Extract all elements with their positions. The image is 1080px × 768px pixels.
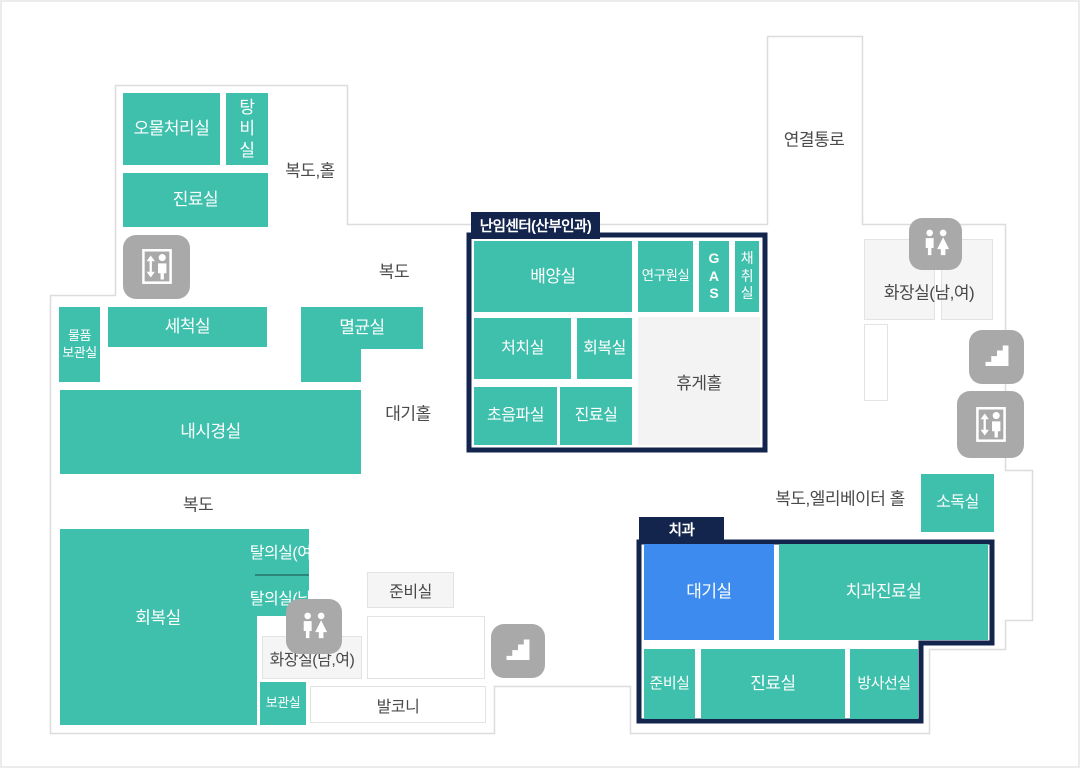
room-pantry-label: 탕 비 실	[239, 97, 254, 161]
dental-tab: 치과	[639, 517, 724, 542]
room-waste-disposal: 오물처리실	[123, 93, 220, 165]
room-dental-clinic-label: 치과진료실	[846, 581, 922, 602]
fertility-center-tab-label: 난임센터(산부인과)	[480, 215, 591, 236]
room-dental-treatment-label: 진료실	[750, 673, 795, 694]
room-dental-treatment: 진료실	[701, 649, 845, 719]
room-collection: 채 취 실	[735, 241, 759, 312]
lounge-hall-label: 휴게홀	[676, 369, 721, 394]
label-elevator-hall: 복도,엘리베이터 홀	[775, 485, 905, 510]
room-culture: 배양실	[474, 241, 632, 312]
room-treatment: 처치실	[474, 318, 571, 379]
room-dental-prep: 준비실	[644, 649, 695, 719]
room-disinfection: 소독실	[921, 474, 994, 532]
room-treatment-label: 처치실	[501, 339, 544, 359]
label-corridor-top: 복도	[379, 258, 409, 283]
stairs-icon-right	[969, 330, 1024, 384]
room-collection-label: 채 취 실	[741, 250, 753, 303]
room-radiology: 방사선실	[850, 649, 918, 719]
prep-room-label: 준비실	[389, 578, 432, 602]
label-waiting-hall: 대기홀	[385, 400, 430, 425]
room-recovery-label: 회복실	[135, 604, 180, 629]
room-dental-clinic: 치과진료실	[779, 544, 988, 640]
prep-room-box: 준비실	[367, 572, 454, 608]
room-researcher: 연구원실	[638, 241, 693, 312]
balcony-box: 발코니	[310, 686, 486, 723]
elevator-icon-right	[957, 391, 1024, 458]
room-sterilization: 멸균실	[301, 307, 423, 349]
room-radiology-label: 방사선실	[857, 675, 910, 694]
room-clinic-fertility-label: 진료실	[575, 406, 618, 426]
room-culture-label: 배양실	[530, 266, 575, 287]
lounge-hall: 휴게홀	[638, 317, 760, 445]
room-dental-waiting: 대기실	[644, 544, 774, 640]
room-changing-women-label: 탈의실(여)	[250, 539, 317, 563]
room-waste-disposal-label: 오물처리실	[134, 118, 210, 139]
room-recovery-fertility: 회복실	[577, 318, 632, 379]
elevator-icon	[123, 235, 190, 299]
room-gas: G A S	[699, 241, 729, 312]
room-pantry: 탕 비 실	[226, 93, 268, 165]
room-washing: 세척실	[108, 307, 267, 347]
restroom-icon-top	[909, 218, 962, 270]
room-sterilization-label: 멸균실	[339, 317, 384, 338]
changing-room-divider	[255, 574, 309, 576]
label-hall-top: 복도,홀	[285, 157, 335, 182]
room-gas-label: G A S	[709, 250, 720, 303]
room-ultrasound-label: 초음파실	[487, 406, 544, 426]
room-goods-storage: 물품 보관실	[59, 307, 100, 382]
restroom-icon-bottom	[286, 599, 342, 654]
room-endoscopy: 내시경실	[60, 390, 361, 474]
room-clinic-top-left: 진료실	[123, 173, 268, 227]
room-clinic-top-left-label: 진료실	[173, 189, 218, 210]
dental-tab-label: 치과	[669, 519, 695, 540]
stairs-icon-bottom	[491, 624, 545, 678]
room-storage-bottom-label: 보관실	[266, 695, 300, 711]
fertility-center-tab: 난임센터(산부인과)	[471, 212, 600, 239]
label-corridor-left: 복도	[183, 491, 213, 516]
room-clinic-fertility: 진료실	[560, 387, 632, 445]
room-recovery-fertility-label: 회복실	[583, 339, 626, 359]
room-ultrasound: 초음파실	[474, 387, 557, 445]
room-washing-label: 세척실	[165, 316, 210, 337]
label-connecting-passage: 연결통로	[784, 126, 845, 151]
label-restroom-top: 화장실(남,여)	[884, 279, 974, 304]
room-dental-waiting-label: 대기실	[686, 581, 731, 602]
balcony-label: 발코니	[377, 693, 420, 717]
room-dental-prep-label: 준비실	[650, 675, 690, 694]
empty-box-bottom	[367, 616, 485, 679]
hospital-floor-plan: 난임센터(산부인과) 치과 휴게홀 준비실 발코니 화장실(남,여) 오물처리실…	[0, 0, 1080, 768]
room-goods-storage-label: 물품 보관실	[62, 328, 96, 361]
room-researcher-label: 연구원실	[642, 268, 690, 285]
empty-box-right	[864, 324, 888, 401]
room-endoscopy-label: 내시경실	[180, 421, 241, 442]
room-disinfection-label: 소독실	[936, 493, 979, 513]
room-storage-bottom: 보관실	[260, 682, 306, 725]
